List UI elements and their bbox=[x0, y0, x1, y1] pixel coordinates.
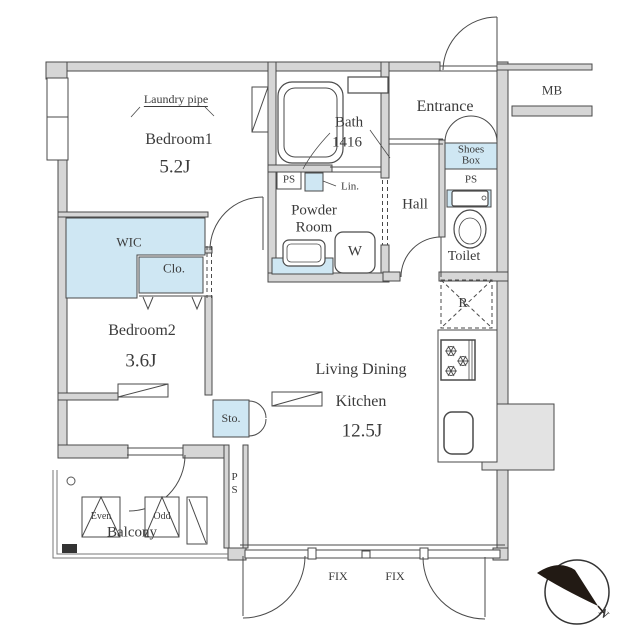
stove-icon bbox=[441, 340, 475, 380]
refrigerator-label: R bbox=[458, 297, 467, 311]
laundry-pipe-label: Laundry pipe bbox=[144, 93, 208, 107]
closet-pivot-2 bbox=[192, 297, 202, 309]
wic-label: WIC bbox=[116, 236, 141, 249]
toilet-door bbox=[401, 237, 441, 277]
floorplan: Laundry pipe Bedroom1 5.2J WIC Clo. Bedr… bbox=[0, 0, 640, 640]
wall-right-upper bbox=[497, 62, 508, 405]
sill-entrance-door bbox=[440, 66, 497, 71]
blue-fixtures bbox=[66, 143, 497, 460]
fix-right-label: FIX bbox=[385, 570, 404, 582]
washing-machine-label: W bbox=[348, 245, 362, 260]
linen-cabinet bbox=[305, 173, 323, 191]
wall-topleft-corner bbox=[46, 62, 67, 79]
wall-bedroom2-balcony-left bbox=[58, 445, 128, 458]
wall-mb-bottom bbox=[512, 106, 592, 116]
washer-even-label: Even bbox=[91, 512, 112, 522]
powder-room-label-2: Room bbox=[296, 221, 333, 236]
wall-bath-bottom bbox=[268, 165, 332, 172]
washer-odd-label: Odd bbox=[153, 512, 170, 522]
sliding-door-icon-bedroom2 bbox=[118, 384, 168, 397]
window-mullion-1 bbox=[308, 548, 316, 559]
storage-doors bbox=[249, 401, 266, 436]
shoes-box-doors bbox=[445, 116, 497, 142]
wall-hall-bottom-stub bbox=[383, 272, 400, 281]
wall-shaft-right bbox=[243, 445, 248, 548]
bedroom1-door bbox=[210, 197, 263, 250]
balcony-hatch-panel bbox=[187, 497, 207, 544]
sill-bath-door bbox=[330, 167, 381, 172]
bedroom1-size: 5.2J bbox=[159, 158, 190, 177]
window-bedroom1-left bbox=[47, 78, 68, 160]
wall-left bbox=[58, 158, 67, 448]
ldk-door-left bbox=[243, 556, 305, 618]
wall-bedroom1-door-stub bbox=[205, 247, 212, 253]
ldk-size: 12.5J bbox=[342, 422, 383, 441]
wall-bedroom2-right bbox=[205, 296, 212, 395]
ldk-door-right bbox=[423, 557, 485, 619]
ps-entrance-label: PS bbox=[465, 175, 477, 186]
powder-room-label-1: Powder bbox=[291, 204, 337, 219]
toilet-label: Toilet bbox=[448, 250, 480, 264]
linen-leader bbox=[323, 181, 336, 186]
balcony-drain bbox=[67, 477, 75, 485]
storage-label: Sto. bbox=[221, 412, 240, 424]
laundry-leader-left bbox=[131, 107, 140, 117]
fix-left-label: FIX bbox=[328, 570, 347, 582]
window-fix-band bbox=[245, 550, 500, 558]
meter-box-label: MB bbox=[542, 84, 562, 97]
bath-size: 1416 bbox=[332, 136, 362, 151]
balcony-label: Balcony bbox=[107, 526, 157, 541]
entrance-label: Entrance bbox=[417, 99, 474, 115]
washbasin-icon bbox=[283, 240, 325, 266]
pipe-panel-bedroom1 bbox=[252, 87, 268, 132]
balcony-partition bbox=[62, 544, 77, 553]
wall-right-lower bbox=[497, 470, 508, 560]
shoes-box-label-2: Box bbox=[462, 156, 480, 167]
bath-label: Bath bbox=[335, 116, 363, 131]
wall-wic-top bbox=[58, 212, 208, 217]
bedroom2-size: 3.6J bbox=[125, 352, 156, 371]
laundry-leader-right bbox=[205, 107, 214, 116]
closet-front bbox=[139, 296, 205, 309]
hall-label: Hall bbox=[402, 198, 428, 213]
sill-balcony-door bbox=[127, 448, 183, 455]
ldk-label-2: Kitchen bbox=[336, 394, 387, 410]
bedroom2-label: Bedroom2 bbox=[108, 323, 176, 339]
ps-bath-label: PS bbox=[283, 175, 295, 186]
wall-bedroom2-bottom bbox=[58, 393, 118, 400]
wall-toilet-left bbox=[439, 140, 445, 237]
linen-label: Lin. bbox=[341, 182, 359, 193]
window-mullion-3 bbox=[420, 548, 428, 559]
closet-pivot-1 bbox=[143, 297, 153, 309]
bath-counter bbox=[348, 77, 388, 93]
sill-hall-step bbox=[389, 139, 443, 144]
window-mullion-2 bbox=[362, 551, 370, 558]
ldk-label-1: Living Dining bbox=[315, 362, 406, 378]
bathtub-icon bbox=[278, 82, 343, 163]
bedroom1-label: Bedroom1 bbox=[145, 132, 213, 148]
toilet-icon bbox=[452, 191, 488, 248]
sliding-door-icon-ldk bbox=[272, 392, 322, 406]
kitchen-sink-bowl bbox=[444, 412, 473, 454]
wall-bedroom2-balcony-right bbox=[183, 445, 225, 458]
closet-label: Clo. bbox=[163, 262, 185, 275]
entrance-door bbox=[443, 17, 497, 70]
ps-balcony-label: PS bbox=[229, 471, 240, 497]
wall-mb-top bbox=[497, 64, 592, 70]
